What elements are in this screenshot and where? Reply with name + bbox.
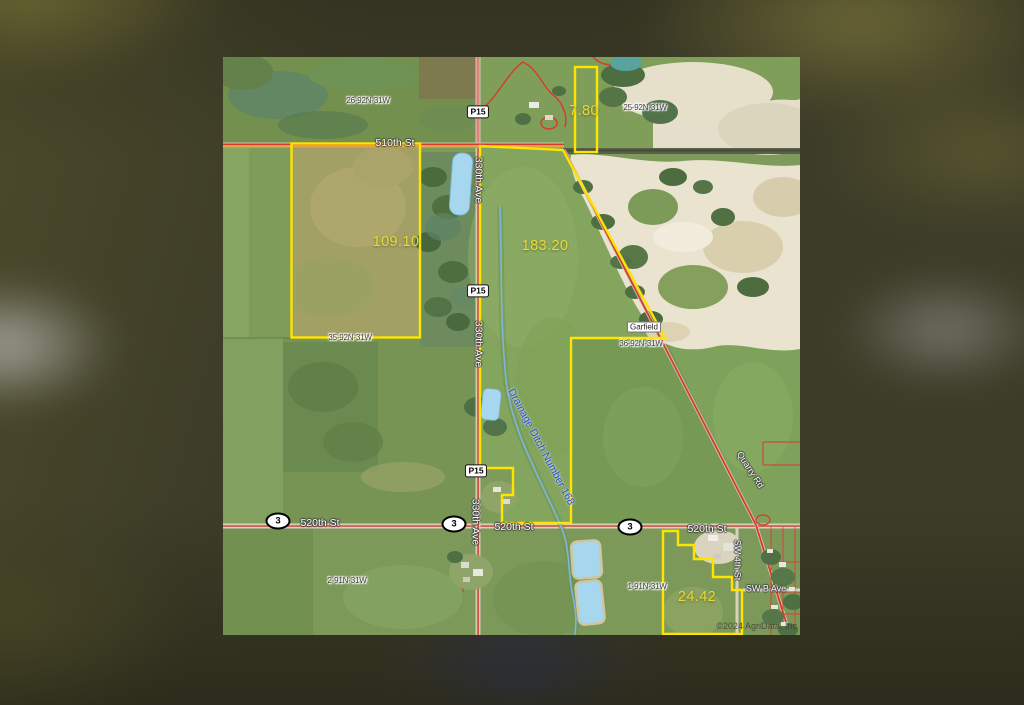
county-road-shield-p15-north: P15 [467,105,489,118]
county-road-shield-p15-south: P15 [465,464,487,477]
screenshot-root: 109.10 183.20 7.80 24.42 26-92N-31W 25-9… [0,0,1024,705]
aerial-map-viewport[interactable]: 109.10 183.20 7.80 24.42 26-92N-31W 25-9… [223,57,800,635]
aerial-imagery-svg [223,57,800,635]
copyright-notice: ©2024 AgriData, Inc [716,621,797,631]
state-route-shield-3-east: 3 [618,519,643,536]
state-route-shield-3-west: 3 [266,513,291,530]
county-road-shield-p15-mid: P15 [467,284,489,297]
state-route-shield-3-mid: 3 [442,516,467,533]
